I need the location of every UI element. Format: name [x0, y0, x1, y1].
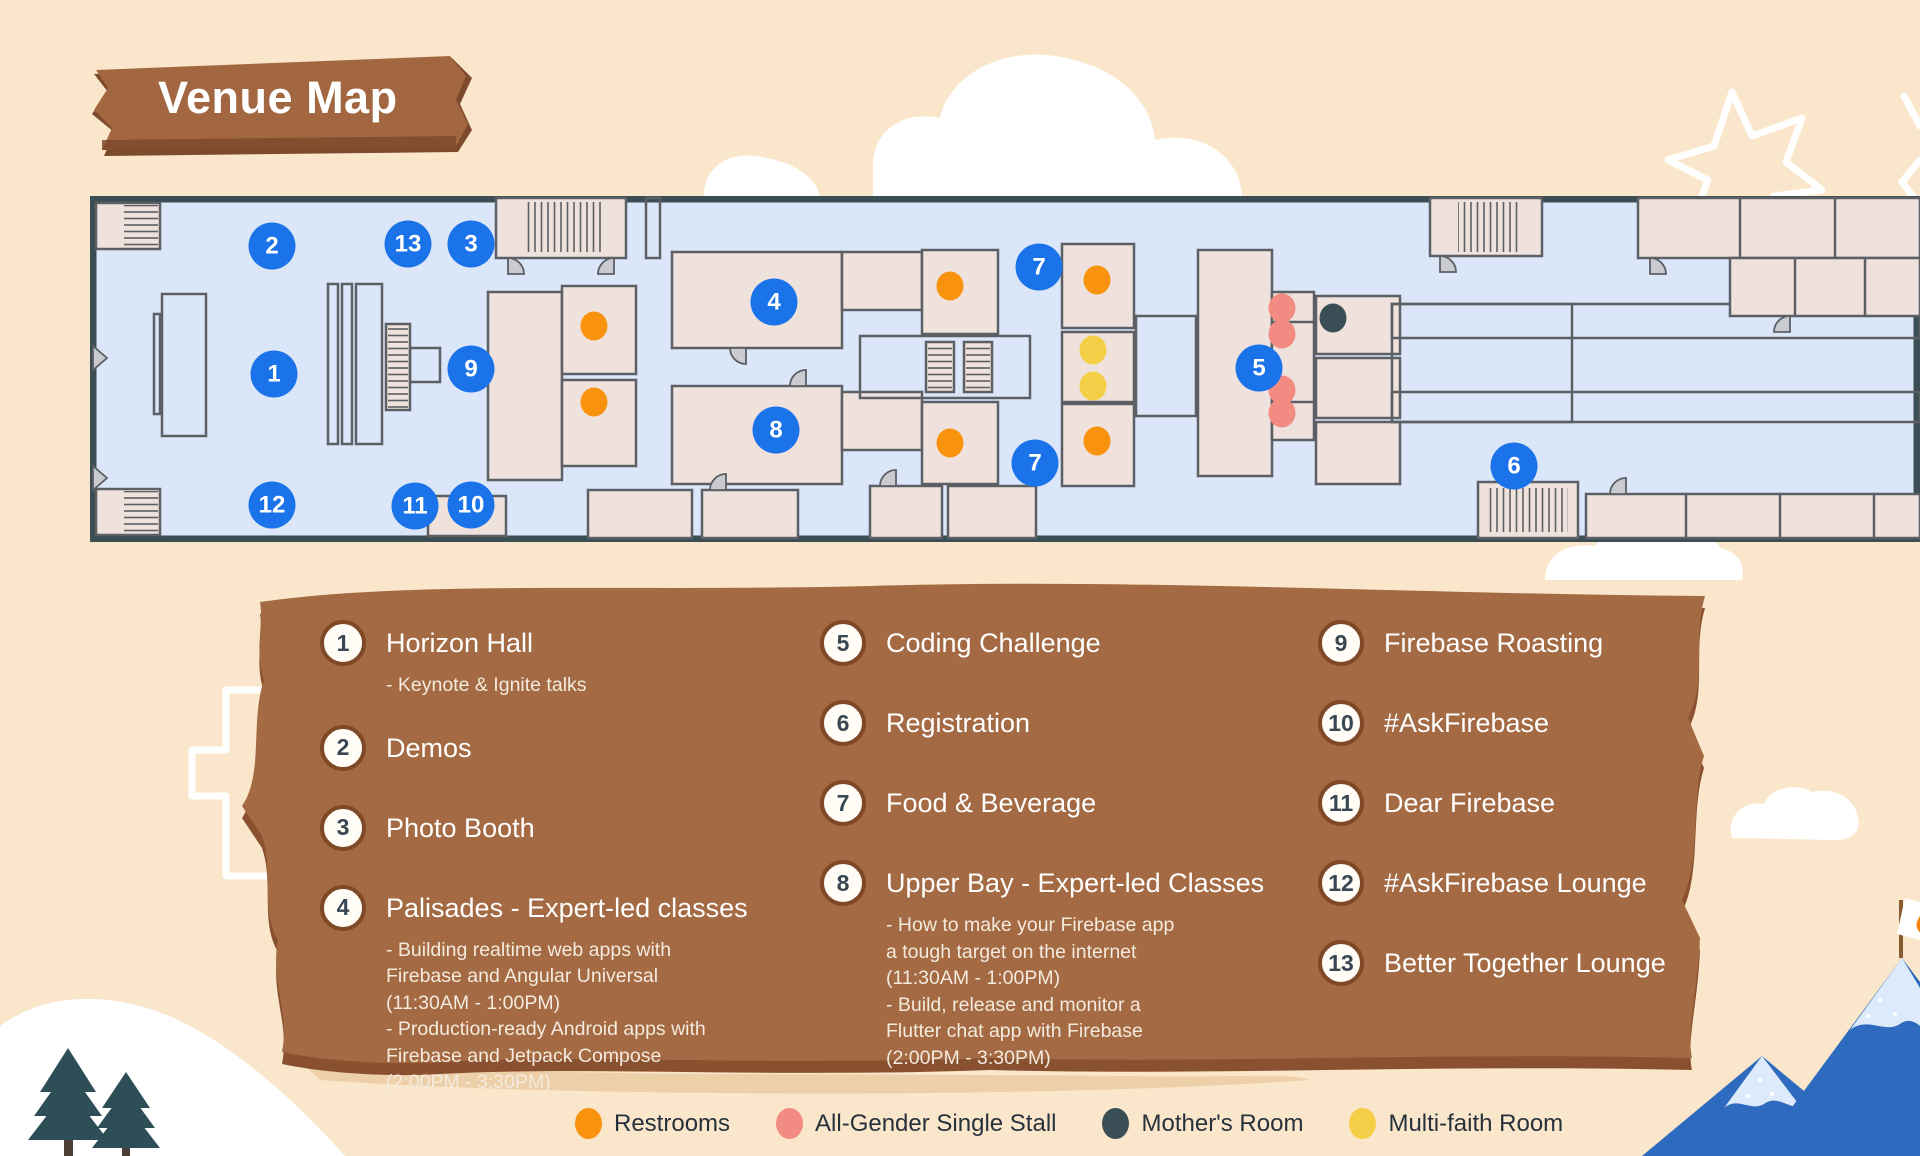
cloud-top-small [704, 155, 820, 196]
mothers-room-dot [1102, 1108, 1129, 1139]
legend-item-number: 6 [820, 700, 866, 746]
amenity-key: RestroomsAll-Gender Single StallMother's… [575, 1108, 1563, 1139]
legend-item-label: #AskFirebase [1384, 700, 1549, 746]
legend-item-label: Firebase Roasting [1384, 620, 1603, 666]
legend-item-number: 10 [1318, 700, 1364, 746]
legend-item-label: Food & Beverage [886, 780, 1096, 826]
legend-column-2: 5Coding Challenge6Registration7Food & Be… [820, 620, 1290, 1097]
legend-detail-line: - Building realtime web apps with [386, 937, 790, 964]
legend-item-label: Coding Challenge [886, 620, 1101, 666]
key-item-multi-faith: Multi-faith Room [1349, 1108, 1563, 1139]
venue-map-poster: Venue Map .rm{fill:#EFE1DB;stroke:#5C606… [0, 0, 1920, 1156]
legend-item-label: Dear Firebase [1384, 780, 1555, 826]
legend-column-1: 1Horizon Hall- Keynote & Ignite talks2De… [320, 620, 790, 1122]
legend-detail-line: - How to make your Firebase app [886, 912, 1290, 939]
legend-item-4: 4Palisades - Expert-led classes- Buildin… [320, 885, 790, 1096]
legend-detail-line: (2:00PM - 3:30PM) [886, 1045, 1290, 1072]
legend-item-7: 7Food & Beverage [820, 780, 1290, 826]
legend-item-number: 8 [820, 860, 866, 906]
legend-item-3: 3Photo Booth [320, 805, 790, 851]
key-item-label: All-Gender Single Stall [815, 1110, 1056, 1138]
key-item-label: Multi-faith Room [1388, 1110, 1563, 1138]
legend-item-number: 9 [1318, 620, 1364, 666]
firebase-flame-icon [1917, 908, 1920, 934]
legend-item-number: 5 [820, 620, 866, 666]
legend-detail-line: (2:00PM - 3:30PM) [386, 1069, 790, 1096]
legend-item-label: Upper Bay - Expert-led Classes [886, 860, 1264, 906]
cloud-top [873, 55, 1242, 196]
pine-trees [28, 1048, 160, 1156]
legend-item-details: - Building realtime web apps withFirebas… [386, 937, 790, 1096]
legend-item-number: 1 [320, 620, 366, 666]
legend-item-details: - Keynote & Ignite talks [386, 672, 790, 699]
legend-item-number: 4 [320, 885, 366, 931]
legend-item-label: Horizon Hall [386, 620, 533, 666]
legend-item-5: 5Coding Challenge [820, 620, 1290, 666]
legend-column-3: 9Firebase Roasting10#AskFirebase11Dear F… [1318, 620, 1788, 1020]
legend-item-label: Registration [886, 700, 1030, 746]
legend-item-number: 2 [320, 725, 366, 771]
legend-detail-line: - Build, release and monitor a [886, 992, 1290, 1019]
legend-detail-line: a tough target on the internet [886, 939, 1290, 966]
legend-item-10: 10#AskFirebase [1318, 700, 1788, 746]
legend-item-9: 9Firebase Roasting [1318, 620, 1788, 666]
legend-item-11: 11Dear Firebase [1318, 780, 1788, 826]
legend-item-number: 11 [1318, 780, 1364, 826]
page-title: Venue Map [158, 72, 398, 124]
floor-plan: .rm{fill:#EFE1DB;stroke:#5C6065;stroke-w… [90, 196, 1920, 542]
floor-plan-drawing: .rm{fill:#EFE1DB;stroke:#5C6065;stroke-w… [90, 196, 1920, 542]
spark-edge-partial [1902, 96, 1920, 206]
all-gender-dot [776, 1108, 803, 1139]
multi-faith-dot [1349, 1108, 1376, 1139]
legend-item-8: 8Upper Bay - Expert-led Classes- How to … [820, 860, 1290, 1071]
legend-detail-line: Firebase and Jetpack Compose [386, 1043, 790, 1070]
legend-item-6: 6Registration [820, 700, 1290, 746]
legend-item-label: Photo Booth [386, 805, 535, 851]
legend-detail-line: (11:30AM - 1:00PM) [386, 990, 790, 1017]
legend-detail-line: - Production-ready Android apps with [386, 1016, 790, 1043]
legend-item-details: - How to make your Firebase appa tough t… [886, 912, 1290, 1071]
legend-detail-line: - Keynote & Ignite talks [386, 672, 790, 699]
legend-item-1: 1Horizon Hall- Keynote & Ignite talks [320, 620, 790, 699]
legend-item-number: 7 [820, 780, 866, 826]
key-item-label: Restrooms [614, 1110, 730, 1138]
legend-item-13: 13Better Together Lounge [1318, 940, 1788, 986]
legend-item-number: 3 [320, 805, 366, 851]
legend-item-2: 2Demos [320, 725, 790, 771]
key-item-restroom: Restrooms [575, 1108, 730, 1139]
restroom-dot [575, 1108, 602, 1139]
legend-item-label: Palisades - Expert-led classes [386, 885, 748, 931]
legend-detail-line: Flutter chat app with Firebase [886, 1018, 1290, 1045]
legend-detail-line: Firebase and Angular Universal [386, 963, 790, 990]
legend-detail-line: (11:30AM - 1:00PM) [886, 965, 1290, 992]
legend-item-number: 12 [1318, 860, 1364, 906]
legend-item-label: Demos [386, 725, 472, 771]
legend-item-number: 13 [1318, 940, 1364, 986]
key-item-label: Mother's Room [1141, 1110, 1303, 1138]
legend-item-label: Better Together Lounge [1384, 940, 1666, 986]
key-item-all-gender: All-Gender Single Stall [776, 1108, 1056, 1139]
key-item-mothers-room: Mother's Room [1102, 1108, 1303, 1139]
legend-item-label: #AskFirebase Lounge [1384, 860, 1647, 906]
legend-item-12: 12#AskFirebase Lounge [1318, 860, 1788, 906]
